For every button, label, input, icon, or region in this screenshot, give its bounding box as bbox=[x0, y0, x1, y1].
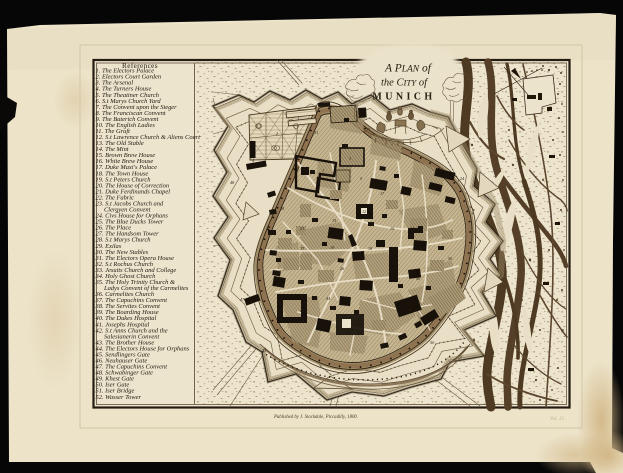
svg-text:Published by J. Stockdale, Pic: Published by J. Stockdale, Piccadilly, 1… bbox=[273, 415, 358, 420]
svg-text:45: 45 bbox=[262, 348, 266, 353]
svg-text:52. Wasser Tower: 52. Wasser Tower bbox=[96, 394, 142, 401]
svg-text:31: 31 bbox=[314, 130, 318, 135]
svg-text:44: 44 bbox=[326, 296, 330, 301]
svg-text:43: 43 bbox=[300, 308, 304, 313]
svg-text:21: 21 bbox=[300, 226, 304, 231]
svg-text:2: 2 bbox=[276, 131, 278, 136]
svg-text:34: 34 bbox=[406, 307, 410, 312]
svg-text:1: 1 bbox=[322, 168, 324, 173]
svg-text:15: 15 bbox=[332, 218, 336, 223]
svg-text:the CITY of: the CITY of bbox=[381, 78, 429, 89]
svg-text:A PLAN of: A PLAN of bbox=[384, 63, 433, 75]
svg-text:3: 3 bbox=[349, 156, 351, 161]
svg-text:5: 5 bbox=[360, 176, 362, 181]
svg-text:33: 33 bbox=[350, 326, 354, 331]
svg-text:24: 24 bbox=[460, 176, 464, 181]
svg-text:12: 12 bbox=[362, 209, 366, 214]
svg-text:MUNICH: MUNICH bbox=[372, 92, 435, 103]
svg-text:4: 4 bbox=[252, 158, 254, 163]
svg-text:14: 14 bbox=[410, 226, 414, 231]
svg-text:Vol. 15: Vol. 15 bbox=[550, 417, 564, 422]
